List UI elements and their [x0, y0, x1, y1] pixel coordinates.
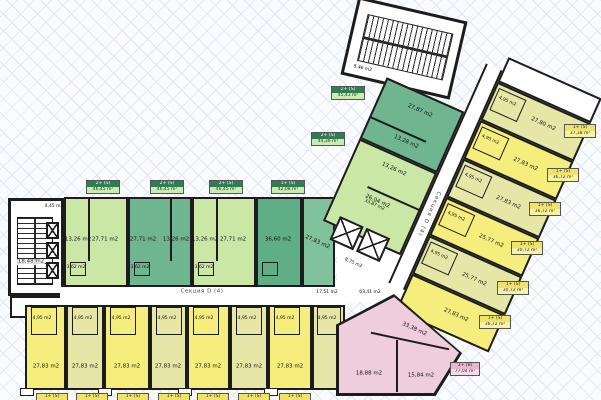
section-label: Секция D (4) — [181, 289, 224, 295]
bath-area-label: 4,95 m2 — [33, 317, 52, 322]
unit-type-badge: 1+ (S) 30,72 m² — [497, 281, 529, 295]
unit-type-badge: 1+ (S) 36,72 m² — [529, 202, 561, 216]
room-divider-wall — [88, 199, 90, 261]
unit-type-badge: 1+ (S) 42,08 m² — [271, 180, 305, 194]
room-area-label: 27,83 m2 — [195, 364, 221, 370]
room-area-label: 27,83 m2 — [277, 364, 303, 370]
room-divider-wall — [216, 199, 218, 261]
unit-type-badge: 1+ (S) 36,72 m² — [76, 393, 108, 400]
badge-area: 36,72 m² — [480, 322, 510, 328]
elevator-icon — [46, 222, 59, 239]
unit-type-badge: 1+ (S) 37,38 m² — [564, 124, 596, 138]
bath-area-label: 4,95 m2 — [74, 317, 93, 322]
room-area-label: 27,83 m2 — [155, 364, 181, 370]
bath-area-label: 3,62 m2 — [67, 266, 86, 271]
room-area-label: 27,71 m2 — [130, 237, 156, 243]
bath-area-label: 4,95 m2 — [158, 317, 177, 322]
unit-type-badge: 1+ (S) 36,72 m² — [547, 168, 579, 182]
unit-type-badge: 1+ (S) 36,72 m² — [479, 315, 511, 329]
room-area-label: 27,71 m2 — [220, 237, 246, 243]
unit-type-badge: 1+ (S) 30,72 m² — [511, 241, 543, 255]
vestibule-area-label: 4,45 m2 — [45, 205, 64, 210]
unit-type-badge: 2+ (S) 44,36 m² — [311, 132, 345, 146]
unit-type-badge: 2+ (S) 46,45 m² — [150, 180, 184, 194]
bathroom — [262, 262, 278, 276]
room-area-label: 18,88 m2 — [356, 371, 382, 377]
unit-type-badge: 2+ (S) 46,45 m² — [209, 180, 243, 194]
stair-area-label: 18,48 m2 — [17, 259, 45, 265]
unit-type-badge: 2+ (S) 46,45 m² — [86, 180, 120, 194]
room-area-label: 27,71 m2 — [92, 237, 118, 243]
room-area-label: 15,84 m2 — [408, 373, 434, 379]
room-area-label: 36,60 m2 — [265, 237, 291, 243]
badge-area: 42,08 m² — [272, 187, 304, 193]
bath-area-label: 4,95 m2 — [318, 317, 337, 322]
room-area-label: 27,83 m2 — [114, 364, 140, 370]
bath-area-label: 3,62 m2 — [131, 266, 150, 271]
unit-type-badge: 3+ (B) 77,04 m² — [450, 362, 480, 376]
badge-area: 46,45 m² — [87, 187, 119, 193]
unit-type-badge: 1+ (S) 36,72 m² — [117, 393, 149, 400]
room-area-label: 27,83 m2 — [33, 364, 59, 370]
bath-area-label: 3,62 m2 — [195, 266, 214, 271]
elevator-icon — [46, 242, 59, 259]
unit-type-badge: 1+ (S) 36,72 m² — [36, 393, 68, 400]
floor-plan: 18,48 m2 4,45 m2 13,26 m2 27,71 m2 3,62 … — [0, 0, 601, 400]
bath-area-label: 4,95 m2 — [276, 317, 295, 322]
room-area-label: 13,26 m2 — [163, 237, 189, 243]
badge-area: 45,43 m² — [332, 93, 364, 99]
room-area-label: 13,26 m2 — [65, 237, 91, 243]
room-area-label: 13,26 m2 — [192, 237, 218, 243]
room-area-label: 27,83 m2 — [236, 364, 262, 370]
bath-area-label: 4,95 m2 — [238, 317, 257, 322]
badge-area: 46,45 m² — [151, 187, 183, 193]
corridor-area-label: 63,41 m2 — [359, 291, 381, 296]
badge-area: 77,04 m² — [451, 369, 479, 375]
bath-area-label: 4,95 m2 — [195, 317, 214, 322]
stair2-area-label: 5,46 m2 — [353, 64, 372, 73]
unit-type-badge: 1+ (S) 36,72 m² — [279, 393, 311, 400]
badge-area: 36,72 m² — [548, 175, 578, 181]
room-divider-wall — [170, 199, 172, 261]
badge-area: 36,72 m² — [530, 209, 560, 215]
room-area-label: 27,83 m2 — [72, 364, 98, 370]
badge-area: 30,72 m² — [498, 288, 528, 294]
badge-area: 46,45 m² — [210, 187, 242, 193]
unit-type-badge: 2+ (S) 45,43 m² — [331, 86, 365, 100]
corridor-area-label: 17,51 m2 — [316, 291, 338, 296]
elevator-icon — [46, 262, 59, 279]
bath-area-label: 4,95 m2 — [112, 317, 131, 322]
unit-type-badge: 1+ (S) 36,72 m² — [238, 393, 270, 400]
unit-type-badge: 1+ (S) 36,72 m² — [197, 393, 229, 400]
room-divider-wall — [396, 340, 398, 392]
porch — [20, 388, 34, 396]
badge-area: 30,72 m² — [512, 248, 542, 254]
badge-area: 37,38 m² — [565, 131, 595, 137]
unit-type-badge: 1+ (S) 36,72 m² — [158, 393, 190, 400]
badge-area: 44,36 m² — [312, 139, 344, 145]
